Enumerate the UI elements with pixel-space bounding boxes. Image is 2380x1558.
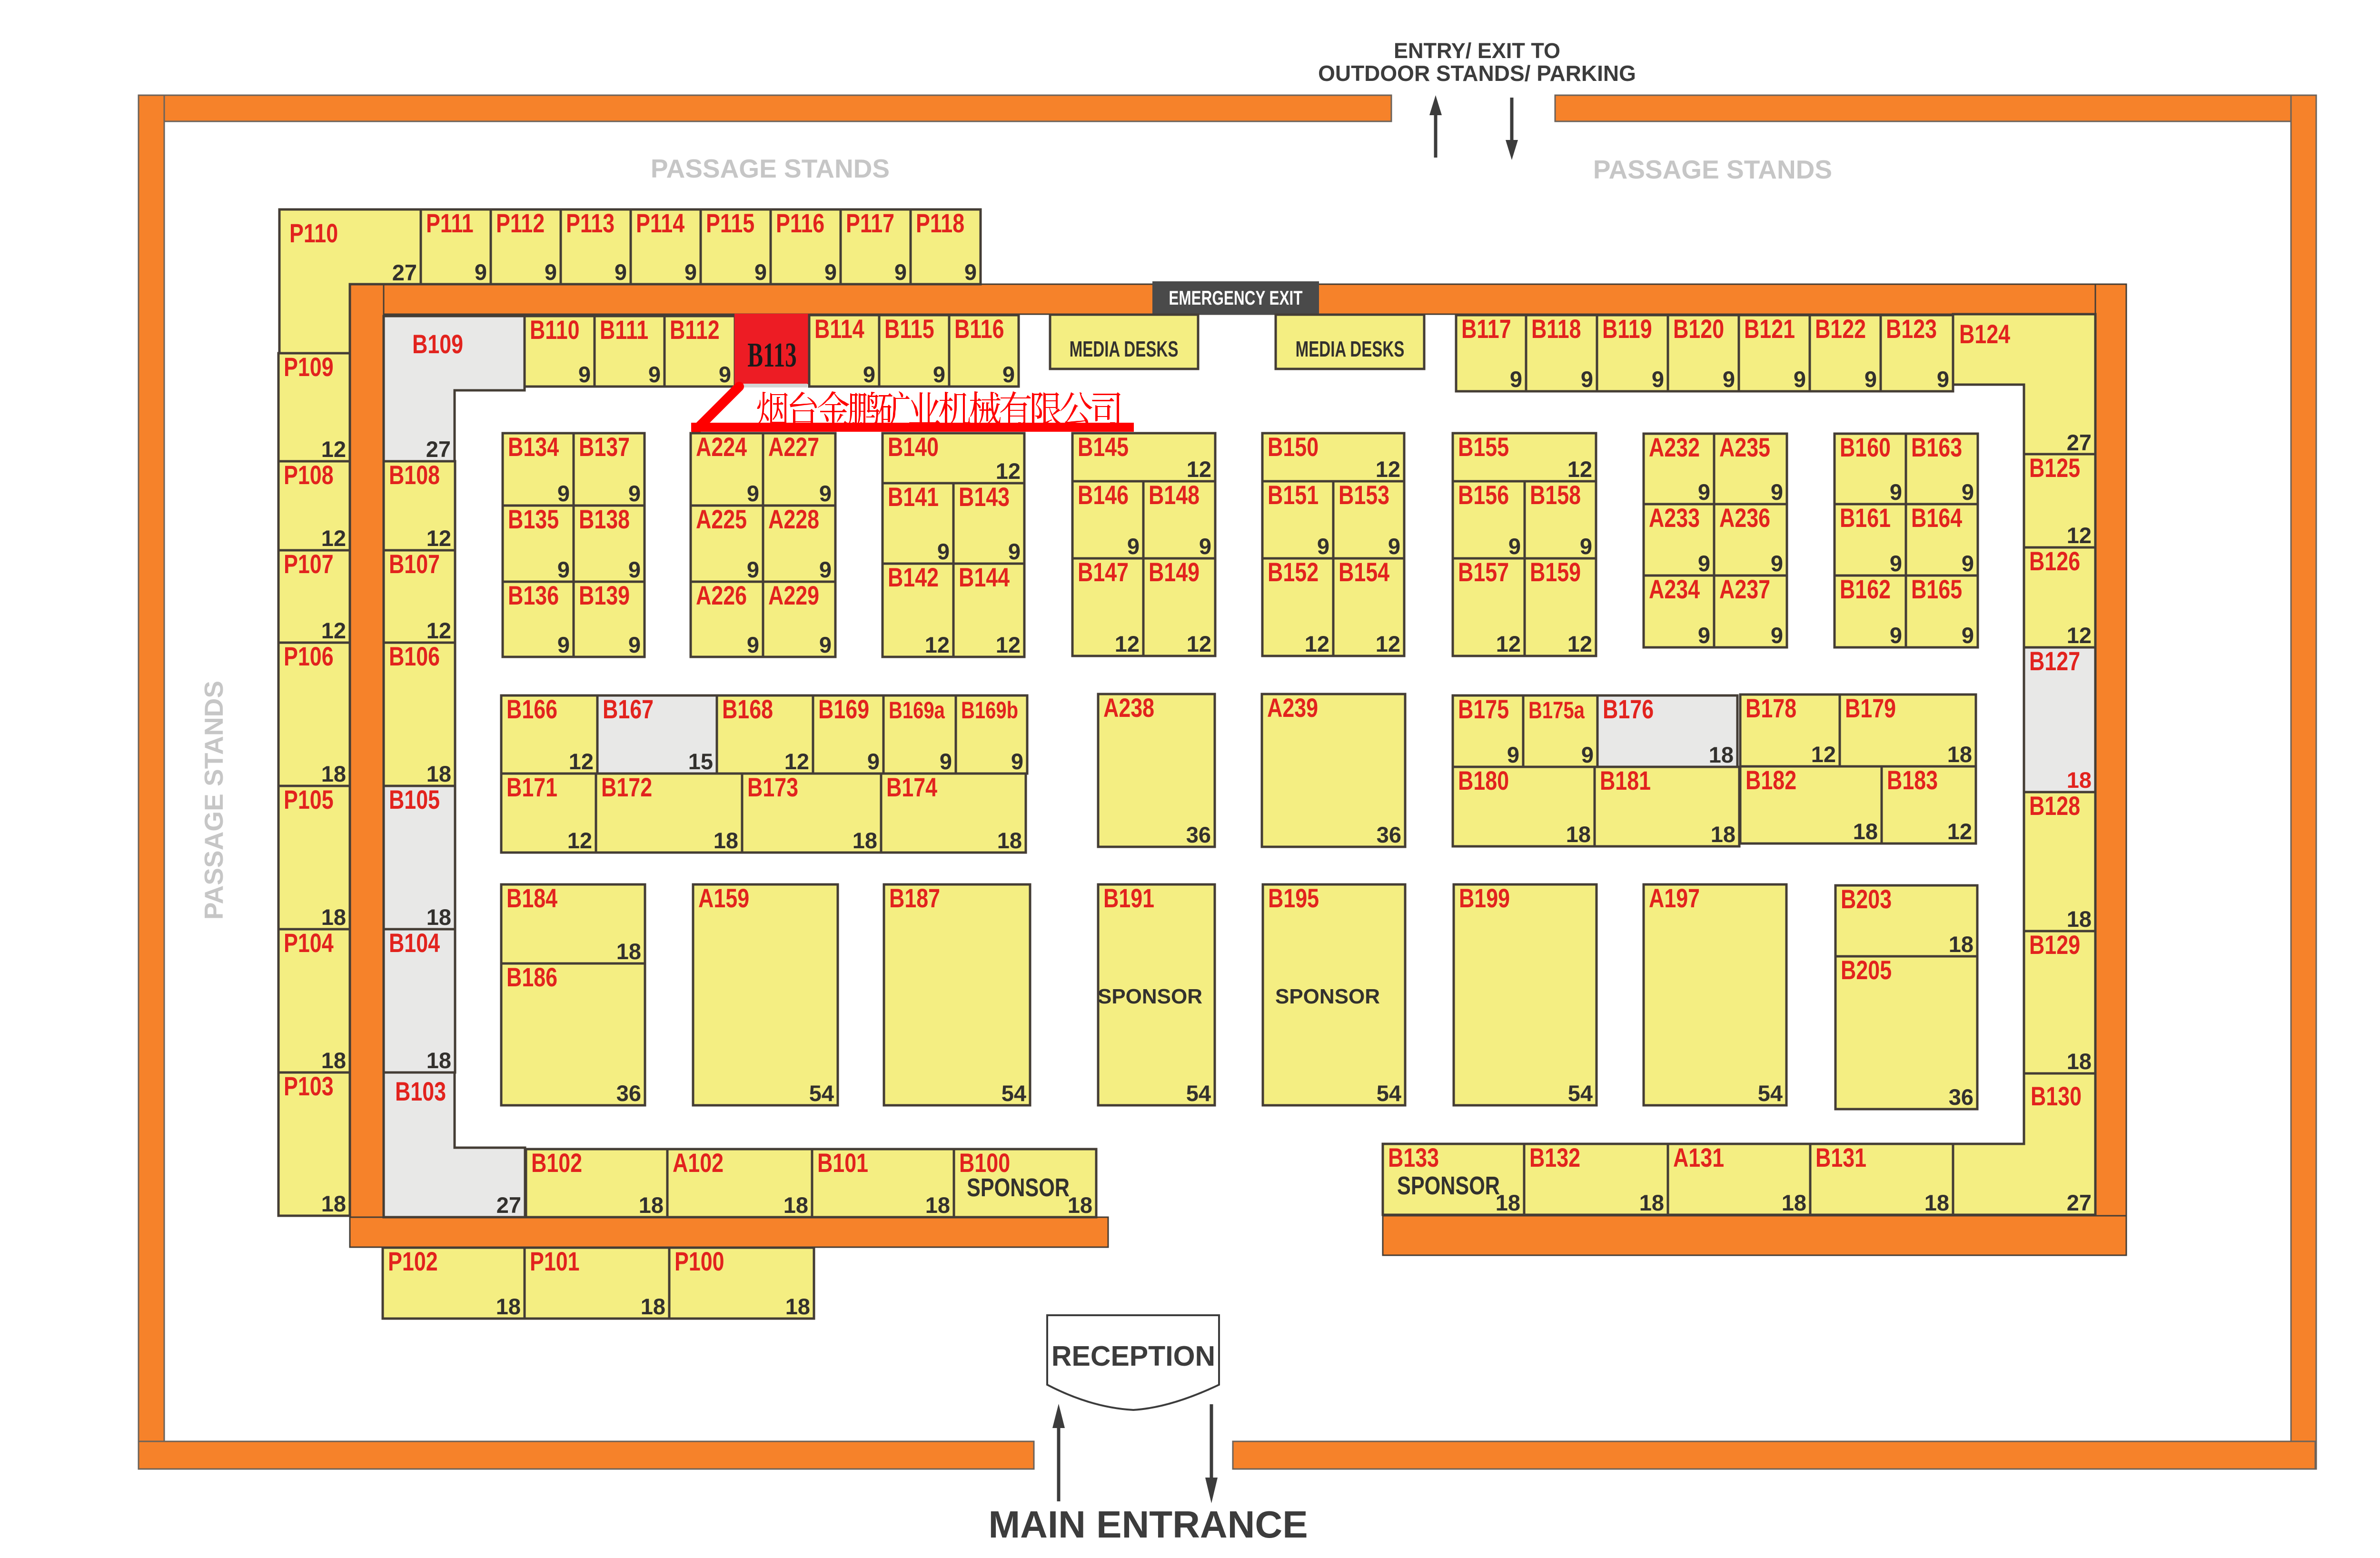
svg-text:SPONSOR: SPONSOR xyxy=(1397,1172,1500,1201)
svg-text:A237: A237 xyxy=(1719,574,1770,604)
svg-text:9: 9 xyxy=(819,557,832,582)
svg-text:SPONSOR: SPONSOR xyxy=(1275,985,1380,1008)
svg-text:9: 9 xyxy=(747,557,759,582)
svg-text:B128: B128 xyxy=(2029,791,2080,821)
svg-text:B104: B104 xyxy=(389,928,440,958)
svg-text:B164: B164 xyxy=(1911,503,1962,533)
svg-text:A159: A159 xyxy=(698,883,749,913)
svg-text:12: 12 xyxy=(1947,819,1972,844)
svg-text:B144: B144 xyxy=(959,562,1010,592)
svg-text:18: 18 xyxy=(321,1048,346,1073)
svg-text:9: 9 xyxy=(684,259,697,285)
svg-text:36: 36 xyxy=(1949,1084,1973,1110)
svg-text:12: 12 xyxy=(1187,631,1211,656)
svg-text:9: 9 xyxy=(1008,539,1021,564)
svg-text:9: 9 xyxy=(1199,534,1211,559)
svg-text:27: 27 xyxy=(426,437,451,462)
svg-text:B173: B173 xyxy=(747,772,798,802)
svg-text:9: 9 xyxy=(1698,623,1710,648)
svg-text:9: 9 xyxy=(719,362,731,387)
svg-text:ENTRY/ EXIT TO: ENTRY/ EXIT TO xyxy=(1394,39,1560,63)
svg-text:B181: B181 xyxy=(1600,765,1651,795)
svg-text:9: 9 xyxy=(1890,623,1902,648)
svg-text:9: 9 xyxy=(1771,551,1783,576)
svg-text:12: 12 xyxy=(1376,456,1400,482)
svg-text:9: 9 xyxy=(557,632,570,657)
svg-text:P102: P102 xyxy=(388,1246,438,1276)
svg-text:18: 18 xyxy=(785,1294,810,1319)
svg-text:27: 27 xyxy=(2067,430,2092,455)
svg-text:SPONSOR: SPONSOR xyxy=(967,1174,1070,1202)
svg-text:B102: B102 xyxy=(531,1148,582,1178)
svg-text:12: 12 xyxy=(1187,456,1211,482)
svg-text:B127: B127 xyxy=(2029,646,2080,676)
svg-text:B163: B163 xyxy=(1911,432,1962,462)
svg-text:A228: A228 xyxy=(768,504,819,534)
svg-text:18: 18 xyxy=(1949,932,1973,957)
svg-text:B175a: B175a xyxy=(1528,697,1585,724)
svg-text:B153: B153 xyxy=(1339,480,1389,510)
svg-text:36: 36 xyxy=(616,1081,641,1106)
svg-text:B105: B105 xyxy=(389,784,440,814)
svg-text:12: 12 xyxy=(1305,631,1329,656)
svg-text:9: 9 xyxy=(628,557,641,582)
svg-text:B140: B140 xyxy=(888,432,939,462)
svg-text:B131: B131 xyxy=(1815,1142,1866,1172)
svg-text:18: 18 xyxy=(783,1192,808,1218)
svg-text:18: 18 xyxy=(2067,767,2092,793)
svg-text:B187: B187 xyxy=(889,883,940,913)
svg-text:B113: B113 xyxy=(747,337,796,375)
svg-text:12: 12 xyxy=(426,526,451,551)
svg-text:9: 9 xyxy=(1002,362,1015,387)
svg-text:B169: B169 xyxy=(818,694,869,724)
svg-text:9: 9 xyxy=(1771,479,1783,505)
svg-text:12: 12 xyxy=(426,618,451,643)
svg-text:18: 18 xyxy=(1566,822,1591,847)
svg-text:B182: B182 xyxy=(1745,765,1796,795)
svg-text:9: 9 xyxy=(545,259,557,285)
svg-text:9: 9 xyxy=(1581,367,1593,392)
svg-text:B103: B103 xyxy=(395,1076,446,1106)
svg-text:B116: B116 xyxy=(954,314,1004,344)
svg-text:B110: B110 xyxy=(530,315,580,345)
svg-text:B203: B203 xyxy=(1841,884,1892,914)
svg-text:B174: B174 xyxy=(886,772,937,802)
svg-text:A227: A227 xyxy=(768,432,819,462)
svg-text:B148: B148 xyxy=(1149,480,1200,510)
svg-text:P111: P111 xyxy=(426,208,474,238)
svg-text:B167: B167 xyxy=(603,694,654,724)
svg-text:18: 18 xyxy=(639,1192,664,1218)
svg-text:A226: A226 xyxy=(696,580,747,610)
svg-text:54: 54 xyxy=(1758,1081,1783,1106)
svg-text:B120: B120 xyxy=(1673,314,1724,344)
svg-text:RECEPTION: RECEPTION xyxy=(1051,1340,1215,1372)
svg-text:B166: B166 xyxy=(506,694,557,724)
svg-text:B150: B150 xyxy=(1268,432,1319,462)
svg-text:B143: B143 xyxy=(959,482,1010,512)
svg-text:B155: B155 xyxy=(1458,432,1509,462)
svg-text:18: 18 xyxy=(321,761,346,786)
svg-text:MAIN ENTRANCE: MAIN ENTRANCE xyxy=(988,1503,1308,1546)
svg-text:B156: B156 xyxy=(1458,480,1509,510)
svg-text:9: 9 xyxy=(1723,367,1735,392)
svg-text:18: 18 xyxy=(1924,1190,1949,1215)
svg-text:B101: B101 xyxy=(817,1148,868,1178)
svg-text:9: 9 xyxy=(557,557,570,582)
svg-text:B178: B178 xyxy=(1745,693,1796,723)
svg-text:B154: B154 xyxy=(1339,557,1389,587)
svg-text:9: 9 xyxy=(863,362,875,387)
svg-text:B158: B158 xyxy=(1530,480,1581,510)
svg-text:B134: B134 xyxy=(508,432,559,462)
svg-text:A225: A225 xyxy=(696,504,747,534)
svg-text:B108: B108 xyxy=(389,460,440,490)
svg-text:P118: P118 xyxy=(916,208,964,238)
svg-text:9: 9 xyxy=(824,259,837,285)
svg-text:18: 18 xyxy=(1068,1192,1092,1218)
svg-text:B107: B107 xyxy=(389,549,440,579)
svg-text:12: 12 xyxy=(925,632,950,657)
svg-text:B165: B165 xyxy=(1911,574,1962,604)
svg-text:B160: B160 xyxy=(1840,432,1891,462)
svg-text:36: 36 xyxy=(1377,822,1401,847)
svg-text:9: 9 xyxy=(964,259,977,285)
svg-text:P104: P104 xyxy=(284,928,334,958)
svg-text:9: 9 xyxy=(1794,367,1806,392)
svg-text:18: 18 xyxy=(616,939,641,964)
svg-text:9: 9 xyxy=(1771,623,1783,648)
svg-text:9: 9 xyxy=(1962,551,1974,576)
svg-text:B106: B106 xyxy=(389,641,440,671)
svg-text:9: 9 xyxy=(867,749,880,774)
svg-text:9: 9 xyxy=(940,749,952,774)
svg-text:A197: A197 xyxy=(1649,883,1700,913)
svg-text:18: 18 xyxy=(496,1294,521,1319)
svg-text:12: 12 xyxy=(321,618,346,643)
svg-text:12: 12 xyxy=(2067,623,2092,648)
svg-text:B138: B138 xyxy=(579,504,630,534)
svg-text:9: 9 xyxy=(557,481,570,506)
svg-text:B180: B180 xyxy=(1458,765,1509,795)
svg-text:9: 9 xyxy=(1698,551,1710,576)
svg-text:P108: P108 xyxy=(284,460,334,490)
svg-text:12: 12 xyxy=(996,458,1021,484)
svg-text:18: 18 xyxy=(1853,819,1878,844)
svg-text:18: 18 xyxy=(1947,742,1972,767)
svg-text:B130: B130 xyxy=(2031,1081,2082,1111)
svg-text:9: 9 xyxy=(628,632,641,657)
svg-text:9: 9 xyxy=(628,481,641,506)
svg-text:12: 12 xyxy=(1567,631,1592,656)
svg-text:54: 54 xyxy=(809,1081,834,1106)
svg-text:9: 9 xyxy=(1937,367,1949,392)
svg-text:54: 54 xyxy=(1002,1081,1026,1106)
svg-text:9: 9 xyxy=(819,632,832,657)
svg-text:P106: P106 xyxy=(284,641,334,671)
svg-text:9: 9 xyxy=(1962,623,1974,648)
svg-text:9: 9 xyxy=(615,259,627,285)
svg-text:OUTDOOR STANDS/ PARKING: OUTDOOR STANDS/ PARKING xyxy=(1318,61,1636,86)
svg-text:B117: B117 xyxy=(1461,314,1511,344)
svg-text:B114: B114 xyxy=(814,314,864,344)
svg-text:9: 9 xyxy=(1011,749,1023,774)
svg-text:B115: B115 xyxy=(884,314,934,344)
svg-text:36: 36 xyxy=(1186,822,1211,847)
svg-text:9: 9 xyxy=(1580,534,1592,559)
svg-text:12: 12 xyxy=(1567,456,1592,482)
svg-text:A131: A131 xyxy=(1673,1142,1724,1172)
svg-text:9: 9 xyxy=(1317,534,1329,559)
svg-text:B157: B157 xyxy=(1458,557,1509,587)
svg-text:B199: B199 xyxy=(1459,883,1510,913)
svg-text:B133: B133 xyxy=(1388,1142,1439,1172)
svg-text:B195: B195 xyxy=(1268,883,1319,913)
svg-text:12: 12 xyxy=(1811,742,1836,767)
svg-text:P109: P109 xyxy=(284,352,334,382)
svg-text:P101: P101 xyxy=(530,1246,580,1276)
svg-text:B137: B137 xyxy=(579,432,630,462)
svg-text:18: 18 xyxy=(1711,822,1735,847)
svg-text:18: 18 xyxy=(997,828,1022,853)
svg-text:A239: A239 xyxy=(1267,693,1318,723)
svg-text:B147: B147 xyxy=(1078,557,1129,587)
svg-text:P113: P113 xyxy=(566,208,615,238)
svg-text:18: 18 xyxy=(1782,1190,1806,1215)
svg-text:A102: A102 xyxy=(673,1148,724,1178)
svg-text:9: 9 xyxy=(754,259,767,285)
svg-text:B139: B139 xyxy=(579,580,630,610)
svg-text:9: 9 xyxy=(1890,479,1902,505)
svg-text:P103: P103 xyxy=(284,1071,334,1101)
svg-text:18: 18 xyxy=(853,828,877,853)
svg-text:B111: B111 xyxy=(600,315,648,345)
svg-text:18: 18 xyxy=(1639,1190,1664,1215)
svg-text:B146: B146 xyxy=(1078,480,1129,510)
svg-text:9: 9 xyxy=(937,539,950,564)
svg-text:B124: B124 xyxy=(1959,319,2010,349)
svg-text:B141: B141 xyxy=(888,482,939,512)
svg-text:B149: B149 xyxy=(1149,557,1200,587)
svg-text:B109: B109 xyxy=(412,329,463,359)
svg-text:B136: B136 xyxy=(508,580,559,610)
svg-text:12: 12 xyxy=(321,526,346,551)
svg-text:18: 18 xyxy=(925,1192,950,1218)
svg-text:12: 12 xyxy=(567,828,592,853)
svg-text:B186: B186 xyxy=(506,962,557,992)
svg-text:B176: B176 xyxy=(1603,694,1654,724)
svg-text:B169b: B169b xyxy=(961,697,1018,724)
svg-text:B179: B179 xyxy=(1845,693,1896,723)
svg-text:12: 12 xyxy=(321,437,346,462)
svg-text:B171: B171 xyxy=(506,772,557,802)
svg-text:B183: B183 xyxy=(1887,765,1938,795)
svg-text:B135: B135 xyxy=(508,504,559,534)
svg-text:9: 9 xyxy=(1127,534,1140,559)
svg-text:9: 9 xyxy=(819,481,832,506)
svg-text:27: 27 xyxy=(392,260,417,285)
svg-text:9: 9 xyxy=(747,481,759,506)
svg-text:P107: P107 xyxy=(284,549,334,579)
svg-text:54: 54 xyxy=(1377,1081,1401,1106)
svg-text:18: 18 xyxy=(321,904,346,930)
svg-text:54: 54 xyxy=(1568,1081,1593,1106)
svg-text:9: 9 xyxy=(1507,742,1519,767)
svg-text:12: 12 xyxy=(1496,631,1521,656)
svg-text:B123: B123 xyxy=(1886,314,1937,344)
svg-text:B159: B159 xyxy=(1530,557,1581,587)
svg-text:P115: P115 xyxy=(706,208,754,238)
svg-text:A232: A232 xyxy=(1649,432,1700,462)
svg-text:9: 9 xyxy=(1510,367,1522,392)
svg-text:A236: A236 xyxy=(1719,503,1770,533)
svg-text:MEDIA DESKS: MEDIA DESKS xyxy=(1070,337,1179,361)
svg-text:B132: B132 xyxy=(1529,1142,1580,1172)
svg-text:12: 12 xyxy=(569,749,594,774)
svg-text:18: 18 xyxy=(2067,1049,2092,1074)
svg-text:B121: B121 xyxy=(1744,314,1795,344)
svg-text:18: 18 xyxy=(426,1048,451,1073)
svg-text:A235: A235 xyxy=(1719,432,1770,462)
svg-text:A224: A224 xyxy=(696,432,747,462)
svg-text:A238: A238 xyxy=(1103,693,1154,723)
svg-text:18: 18 xyxy=(426,761,451,786)
svg-text:B162: B162 xyxy=(1840,574,1891,604)
svg-text:9: 9 xyxy=(1890,551,1902,576)
svg-text:B175: B175 xyxy=(1458,694,1509,724)
svg-text:12: 12 xyxy=(2067,523,2092,548)
svg-text:18: 18 xyxy=(426,904,451,930)
svg-text:9: 9 xyxy=(1962,479,1974,505)
svg-text:9: 9 xyxy=(1698,479,1710,505)
svg-text:A233: A233 xyxy=(1649,503,1700,533)
svg-text:B126: B126 xyxy=(2029,546,2080,576)
svg-text:B112: B112 xyxy=(670,315,720,345)
svg-text:B119: B119 xyxy=(1602,314,1652,344)
svg-text:18: 18 xyxy=(1709,742,1734,767)
svg-text:SPONSOR: SPONSOR xyxy=(1098,985,1202,1008)
svg-text:A229: A229 xyxy=(768,580,819,610)
svg-text:B191: B191 xyxy=(1103,883,1154,913)
svg-text:P117: P117 xyxy=(846,208,894,238)
svg-text:PASSAGE STANDS: PASSAGE STANDS xyxy=(651,154,890,183)
svg-text:P116: P116 xyxy=(776,208,824,238)
svg-text:B205: B205 xyxy=(1841,955,1892,985)
svg-text:B129: B129 xyxy=(2029,930,2080,960)
svg-text:9: 9 xyxy=(1581,742,1594,767)
svg-text:B122: B122 xyxy=(1815,314,1866,344)
svg-text:MEDIA DESKS: MEDIA DESKS xyxy=(1296,337,1405,361)
svg-text:P112: P112 xyxy=(496,208,545,238)
svg-text:12: 12 xyxy=(1115,631,1140,656)
svg-text:B161: B161 xyxy=(1840,503,1891,533)
svg-text:B118: B118 xyxy=(1531,314,1581,344)
svg-text:B169a: B169a xyxy=(889,697,945,724)
svg-text:P100: P100 xyxy=(674,1246,724,1276)
svg-text:12: 12 xyxy=(996,632,1021,657)
svg-text:9: 9 xyxy=(648,362,661,387)
svg-text:15: 15 xyxy=(688,749,713,774)
svg-text:B125: B125 xyxy=(2029,453,2080,483)
svg-text:9: 9 xyxy=(1864,367,1877,392)
svg-text:P114: P114 xyxy=(636,208,684,238)
svg-text:B142: B142 xyxy=(888,562,939,592)
svg-text:B152: B152 xyxy=(1268,557,1319,587)
svg-text:9: 9 xyxy=(1508,534,1521,559)
svg-text:54: 54 xyxy=(1186,1081,1211,1106)
svg-text:B151: B151 xyxy=(1268,480,1319,510)
svg-text:18: 18 xyxy=(2067,906,2092,932)
svg-text:B184: B184 xyxy=(506,883,557,913)
svg-text:27: 27 xyxy=(496,1192,521,1218)
svg-text:P110: P110 xyxy=(289,218,338,248)
svg-text:B168: B168 xyxy=(722,694,773,724)
svg-text:12: 12 xyxy=(1376,631,1400,656)
svg-text:9: 9 xyxy=(747,632,759,657)
svg-text:B172: B172 xyxy=(601,772,652,802)
svg-text:9: 9 xyxy=(1652,367,1664,392)
svg-text:18: 18 xyxy=(714,828,738,853)
svg-text:EMERGENCY EXIT: EMERGENCY EXIT xyxy=(1169,287,1302,309)
svg-text:18: 18 xyxy=(321,1191,346,1216)
svg-text:9: 9 xyxy=(578,362,591,387)
svg-text:27: 27 xyxy=(2067,1190,2092,1215)
svg-text:PASSAGE STANDS: PASSAGE STANDS xyxy=(1593,155,1832,184)
svg-text:9: 9 xyxy=(894,259,907,285)
svg-text:9: 9 xyxy=(475,259,487,285)
svg-text:18: 18 xyxy=(641,1294,665,1319)
svg-text:9: 9 xyxy=(1388,534,1400,559)
svg-text:P105: P105 xyxy=(284,784,334,814)
svg-text:12: 12 xyxy=(784,749,809,774)
svg-text:B145: B145 xyxy=(1078,432,1129,462)
svg-text:A234: A234 xyxy=(1649,574,1700,604)
svg-text:PASSAGE STANDS: PASSAGE STANDS xyxy=(199,681,228,920)
svg-text:9: 9 xyxy=(933,362,945,387)
